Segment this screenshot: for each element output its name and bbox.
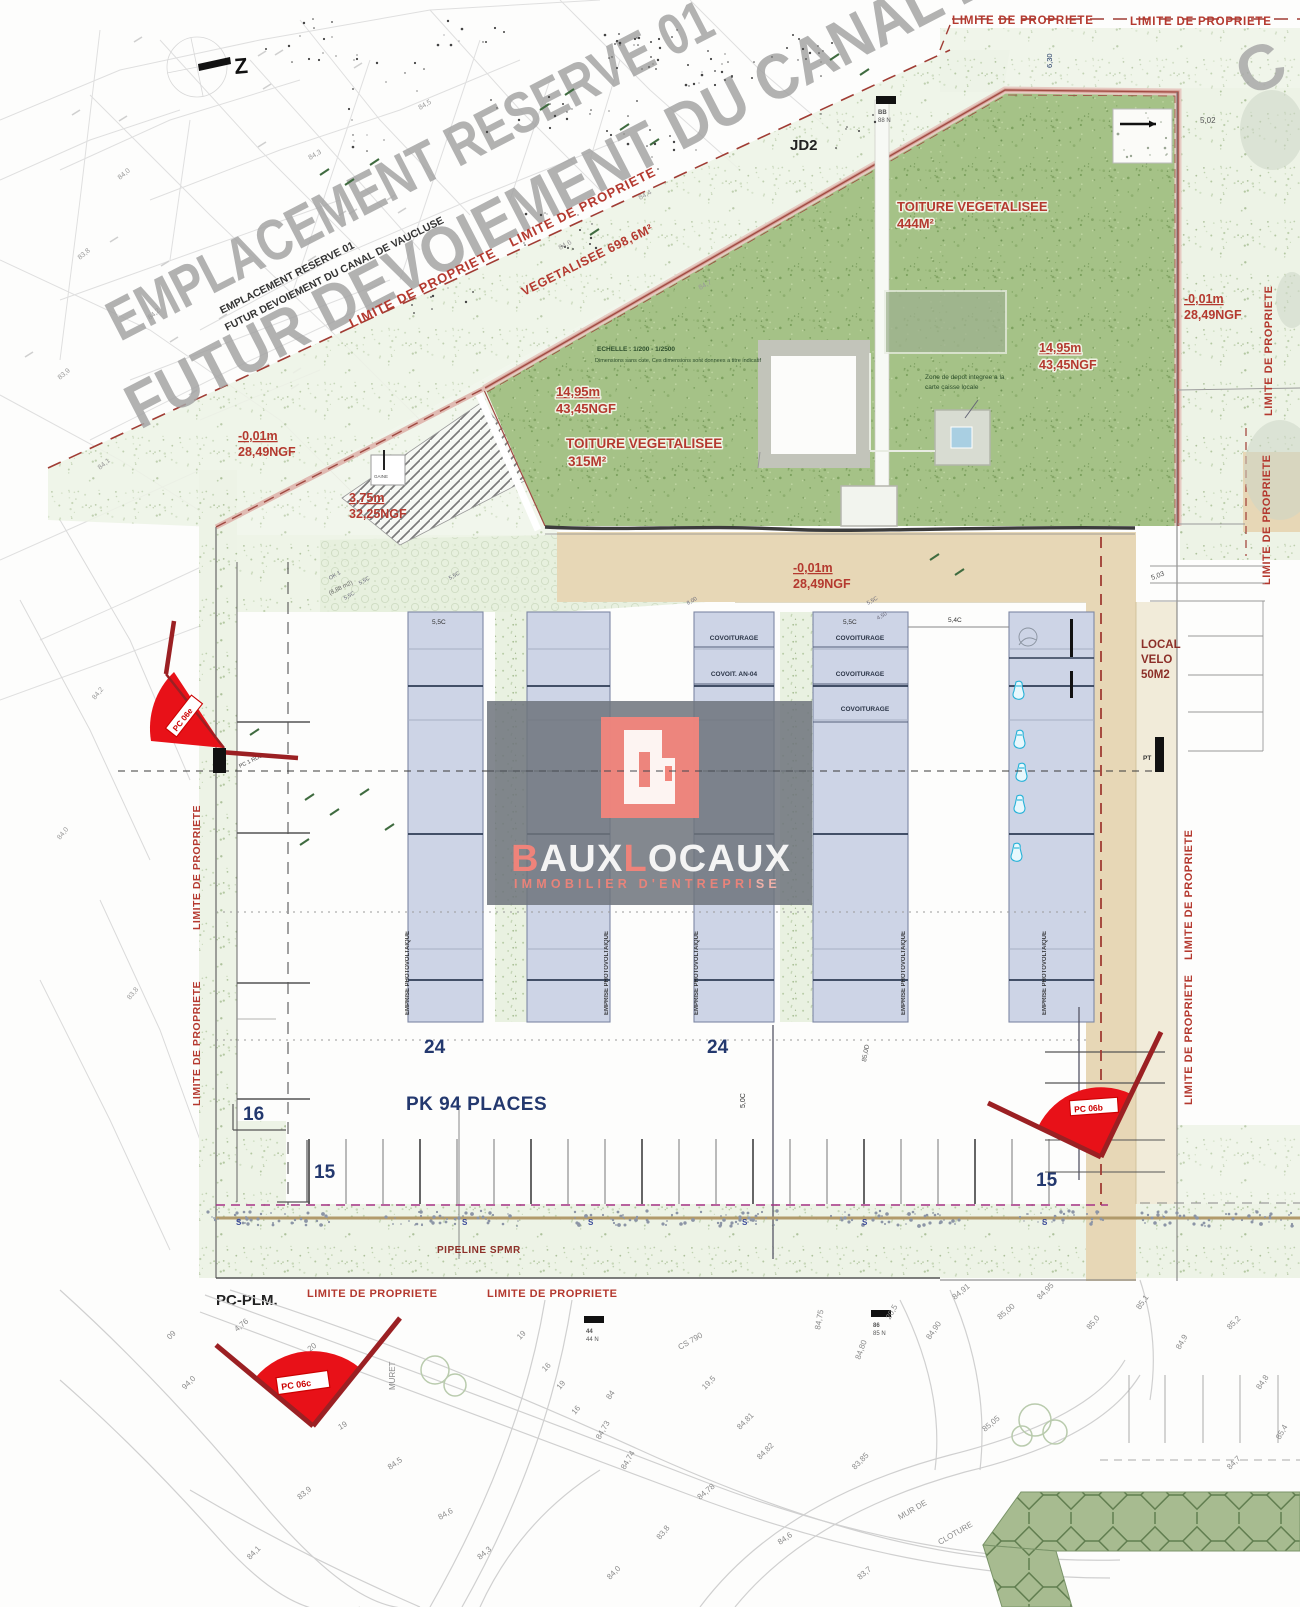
svg-text:15: 15	[314, 1162, 336, 1183]
svg-text:Z: Z	[233, 53, 249, 79]
svg-text:Dimensions sans cote. Ces dime: Dimensions sans cote. Ces dimensions son…	[595, 358, 761, 364]
svg-text:S: S	[462, 1218, 468, 1227]
svg-text:LIMITE DE PROPRIETE: LIMITE DE PROPRIETE	[952, 15, 1094, 27]
svg-text:5,0C: 5,0C	[740, 1093, 747, 1108]
svg-text:S: S	[588, 1218, 594, 1227]
svg-text:-0,01m: -0,01m	[1184, 292, 1224, 306]
svg-text:444M²: 444M²	[897, 216, 935, 231]
svg-text:24: 24	[424, 1037, 446, 1058]
svg-text:LIMITE DE PROPRIETE: LIMITE DE PROPRIETE	[487, 1288, 618, 1300]
svg-text:PC-PLM.: PC-PLM.	[216, 1292, 278, 1309]
svg-text:14,95m: 14,95m	[556, 384, 600, 399]
svg-text:S: S	[862, 1218, 868, 1227]
svg-text:MURET: MURET	[388, 1361, 397, 1390]
svg-text:COVOITURAGE: COVOITURAGE	[836, 671, 885, 678]
svg-text:S: S	[742, 1218, 748, 1227]
svg-text:88 N: 88 N	[878, 118, 891, 124]
svg-text:IMMOBILIER D'ENTREPRISE: IMMOBILIER D'ENTREPRISE	[514, 877, 781, 891]
svg-text:5,5C: 5,5C	[843, 619, 857, 626]
svg-text:-0,01m: -0,01m	[238, 429, 278, 443]
svg-text:BB: BB	[878, 110, 887, 116]
svg-text:15: 15	[1036, 1170, 1058, 1191]
svg-text:5,5C: 5,5C	[432, 619, 446, 626]
svg-text:44: 44	[586, 1329, 593, 1335]
svg-text:ECHELLE : 1/200 - 1/2500: ECHELLE : 1/200 - 1/2500	[597, 346, 675, 353]
svg-text:LIMITE DE PROPRIETE: LIMITE DE PROPRIETE	[191, 805, 203, 930]
svg-text:16: 16	[243, 1104, 264, 1125]
svg-text:85 N: 85 N	[873, 1331, 886, 1337]
svg-text:Zone de depot integree a la: Zone de depot integree a la	[925, 374, 1005, 381]
svg-text:S: S	[1042, 1218, 1048, 1227]
svg-text:32,25NGF: 32,25NGF	[349, 507, 407, 521]
svg-text:JD2: JD2	[790, 137, 818, 154]
svg-text:28,49NGF: 28,49NGF	[793, 577, 851, 591]
svg-text:315M²: 315M²	[568, 454, 607, 469]
svg-text:50M2: 50M2	[1141, 669, 1170, 681]
svg-text:COVOITURAGE: COVOITURAGE	[710, 635, 759, 642]
svg-text:43,45NGF: 43,45NGF	[556, 401, 616, 416]
svg-text:LOCAL: LOCAL	[1141, 639, 1181, 651]
svg-text:LIMITE DE PROPRIETE: LIMITE DE PROPRIETE	[1183, 829, 1195, 960]
svg-text:EMPRISE PHOTOVOLTAIQUE: EMPRISE PHOTOVOLTAIQUE	[694, 931, 700, 1015]
svg-text:44 N: 44 N	[586, 1337, 599, 1343]
svg-text:86: 86	[873, 1323, 880, 1329]
svg-text:S: S	[236, 1218, 242, 1227]
svg-text:LIMITE DE PROPRIETE: LIMITE DE PROPRIETE	[1263, 285, 1275, 416]
svg-text:5,02: 5,02	[1200, 116, 1216, 125]
svg-text:LIMITE DE PROPRIETE: LIMITE DE PROPRIETE	[191, 981, 203, 1106]
svg-text:TOITURE VEGETALISEE: TOITURE VEGETALISEE	[566, 436, 722, 451]
svg-text:PK 94 PLACES: PK 94 PLACES	[406, 1094, 547, 1115]
svg-text:LIMITE DE PROPRIETE: LIMITE DE PROPRIETE	[1130, 16, 1272, 28]
svg-text:LIMITE DE PROPRIETE: LIMITE DE PROPRIETE	[1261, 454, 1273, 585]
svg-text:EMPRISE PHOTOVOLTAIQUE: EMPRISE PHOTOVOLTAIQUE	[1042, 931, 1048, 1015]
svg-text:LIMITE DE PROPRIETE: LIMITE DE PROPRIETE	[1183, 974, 1195, 1105]
svg-text:TOITURE VEGETALISEE: TOITURE VEGETALISEE	[897, 199, 1048, 214]
svg-text:3,75m: 3,75m	[349, 491, 384, 505]
svg-text:EMPRISE PHOTOVOLTAIQUE: EMPRISE PHOTOVOLTAIQUE	[405, 931, 411, 1015]
svg-text:COVOIT. AN-04: COVOIT. AN-04	[711, 671, 758, 678]
svg-text:28,49NGF: 28,49NGF	[1184, 308, 1242, 322]
svg-text:VELO: VELO	[1141, 654, 1172, 666]
svg-text:carte caisse locale: carte caisse locale	[925, 384, 979, 391]
svg-text:6,30: 6,30	[1045, 53, 1054, 68]
svg-text:PIPELINE SPMR: PIPELINE SPMR	[437, 1245, 521, 1256]
svg-text:EMPRISE PHOTOVOLTAIQUE: EMPRISE PHOTOVOLTAIQUE	[604, 931, 610, 1015]
svg-text:5,4C: 5,4C	[948, 617, 962, 624]
svg-text:PC 06b: PC 06b	[1074, 1102, 1103, 1114]
svg-text:GAINE: GAINE	[374, 474, 388, 479]
svg-text:LIMITE DE PROPRIETE: LIMITE DE PROPRIETE	[307, 1288, 438, 1300]
svg-text:PT: PT	[1143, 755, 1151, 762]
svg-text:EMPRISE PHOTOVOLTAIQUE: EMPRISE PHOTOVOLTAIQUE	[901, 931, 907, 1015]
svg-text:BAUXLOCAUX: BAUXLOCAUX	[511, 838, 791, 880]
svg-text:COVOITURAGE: COVOITURAGE	[836, 635, 885, 642]
svg-text:24: 24	[707, 1037, 729, 1058]
svg-text:COVOITURAGE: COVOITURAGE	[841, 706, 890, 713]
svg-text:28,49NGF: 28,49NGF	[238, 445, 296, 459]
svg-text:14,95m: 14,95m	[1039, 341, 1081, 355]
svg-text:43,45NGF: 43,45NGF	[1039, 358, 1097, 372]
svg-text:-0,01m: -0,01m	[793, 561, 833, 575]
